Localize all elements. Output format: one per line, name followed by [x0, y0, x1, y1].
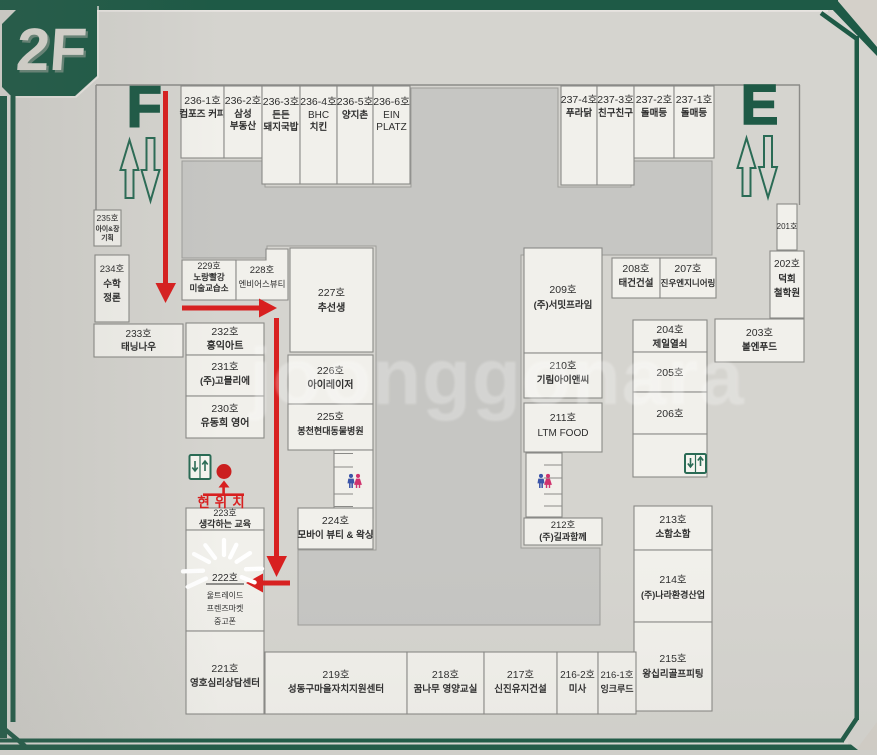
- svg-text:LTM FOOD: LTM FOOD: [538, 428, 589, 439]
- svg-text:(주)길과함께: (주)길과함께: [539, 531, 586, 542]
- svg-text:208호: 208호: [622, 263, 650, 275]
- svg-text:태건건설: 태건건설: [619, 277, 654, 289]
- svg-text:213호: 213호: [659, 514, 687, 526]
- svg-text:236-5호: 236-5호: [337, 96, 374, 108]
- svg-text:엔비어스뷰티: 엔비어스뷰티: [239, 279, 286, 289]
- svg-text:진우엔지니어링: 진우엔지니어링: [661, 278, 716, 288]
- svg-text:치킨: 치킨: [310, 121, 327, 133]
- svg-text:삼성: 삼성: [234, 108, 251, 120]
- svg-text:237-2호: 237-2호: [636, 94, 673, 106]
- svg-text:부동산: 부동산: [230, 120, 256, 132]
- svg-text:236-3호: 236-3호: [263, 96, 300, 108]
- svg-text:친구친구: 친구친구: [598, 107, 633, 119]
- svg-text:236-2호: 236-2호: [225, 95, 262, 107]
- svg-text:228호: 228호: [250, 265, 275, 276]
- svg-text:든든: 든든: [272, 110, 290, 121]
- svg-text:EIN: EIN: [383, 110, 400, 121]
- svg-text:돌매등: 돌매등: [641, 107, 667, 119]
- svg-text:237-1호: 237-1호: [676, 94, 713, 106]
- svg-text:돌매등: 돌매등: [681, 107, 707, 119]
- svg-text:202호: 202호: [774, 258, 800, 270]
- svg-text:돼지국밥: 돼지국밥: [264, 121, 299, 133]
- svg-text:BHC: BHC: [308, 110, 329, 121]
- svg-text:227호: 227호: [318, 287, 346, 299]
- svg-text:푸라닭: 푸라닭: [566, 107, 592, 119]
- svg-text:236-6호: 236-6호: [373, 96, 410, 108]
- svg-text:추선생: 추선생: [318, 301, 346, 314]
- svg-text:224호: 224호: [322, 515, 350, 527]
- svg-text:소함소함: 소함소함: [656, 528, 691, 540]
- svg-text:볼엔푸드: 볼엔푸드: [742, 341, 777, 353]
- svg-text:봉천현대동물병원: 봉천현대동물병원: [297, 425, 363, 436]
- svg-text:237-4호: 237-4호: [561, 94, 598, 106]
- svg-text:철학원: 철학원: [774, 287, 800, 299]
- svg-text:237-3호: 237-3호: [597, 94, 634, 106]
- svg-text:(주)서밋프라임: (주)서밋프라임: [534, 299, 593, 311]
- svg-text:236-4호: 236-4호: [300, 96, 337, 108]
- svg-text:E: E: [741, 73, 779, 137]
- svg-text:덕희: 덕희: [778, 273, 795, 285]
- svg-text:joonggonara: joonggonara: [247, 332, 744, 421]
- svg-text:201호: 201호: [777, 222, 798, 231]
- svg-text:모바이 뷰티 & 왁싱: 모바이 뷰티 & 왁싱: [298, 529, 374, 541]
- svg-text:212호: 212호: [551, 520, 576, 531]
- svg-text:209호: 209호: [549, 284, 577, 296]
- svg-text:양지촌: 양지촌: [342, 109, 368, 121]
- svg-text:PLATZ: PLATZ: [376, 122, 406, 133]
- svg-text:207호: 207호: [674, 263, 702, 275]
- svg-text:203호: 203호: [746, 327, 774, 339]
